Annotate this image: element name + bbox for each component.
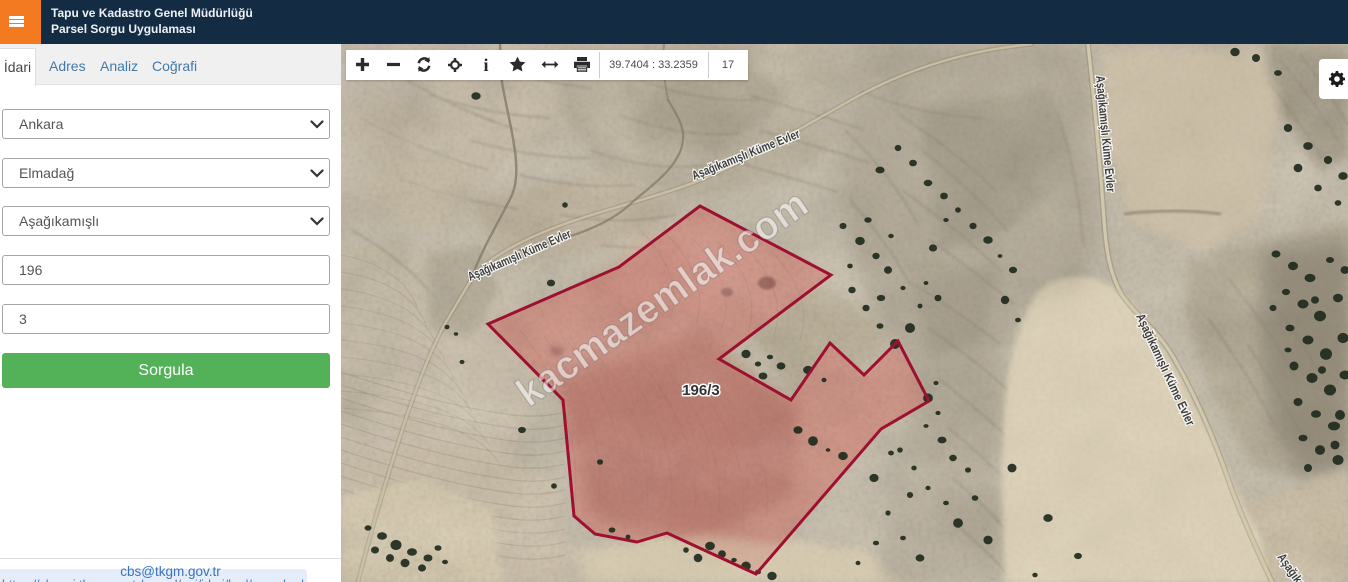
svg-text:196/3: 196/3 [682, 382, 720, 399]
